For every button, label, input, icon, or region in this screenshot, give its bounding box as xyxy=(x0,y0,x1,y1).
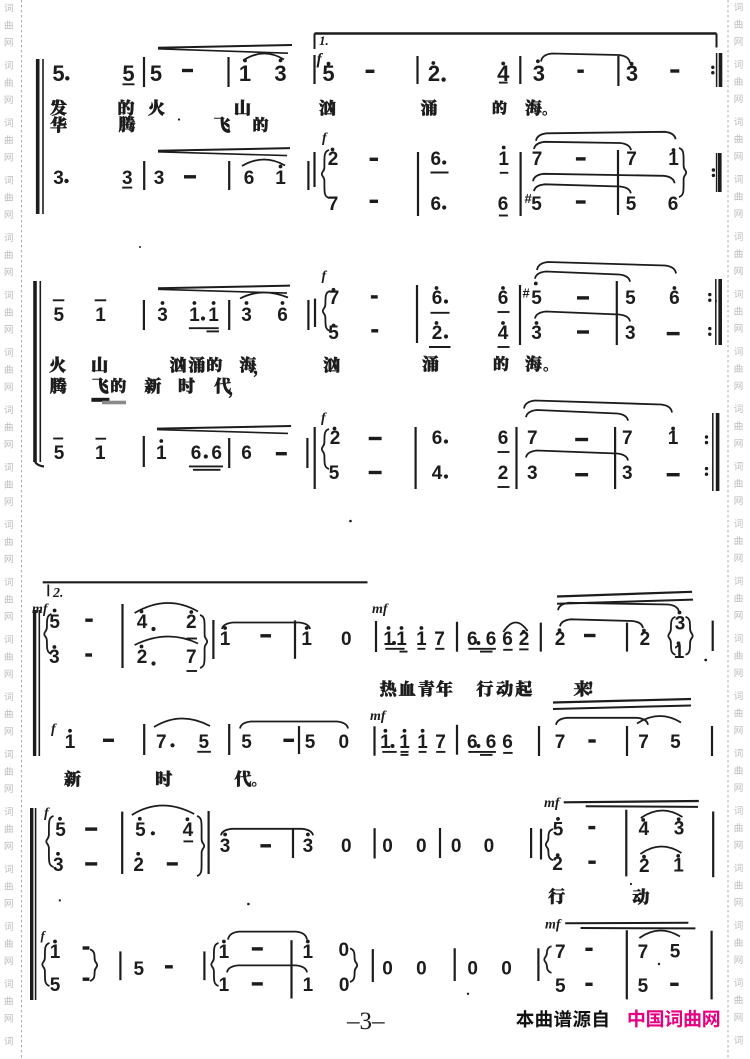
svg-text:6: 6 xyxy=(241,443,252,464)
svg-text:5: 5 xyxy=(54,443,65,464)
svg-text:1: 1 xyxy=(65,732,76,753)
svg-text:0: 0 xyxy=(484,836,495,857)
svg-text:3: 3 xyxy=(303,836,314,857)
svg-text:1: 1 xyxy=(303,975,314,996)
svg-text:1: 1 xyxy=(668,149,679,170)
svg-text:mf: mf xyxy=(545,918,562,933)
svg-text:1: 1 xyxy=(220,629,231,650)
svg-text:1: 1 xyxy=(417,732,428,753)
svg-text:f: f xyxy=(41,928,47,943)
svg-text:7: 7 xyxy=(622,428,633,449)
svg-text:0: 0 xyxy=(382,836,393,857)
svg-text:#: # xyxy=(523,286,531,301)
svg-text:6: 6 xyxy=(211,443,222,464)
svg-text:1: 1 xyxy=(498,149,509,170)
svg-text:5: 5 xyxy=(305,732,316,753)
svg-text:1: 1 xyxy=(301,629,312,650)
svg-text:4: 4 xyxy=(432,463,443,484)
svg-text:3: 3 xyxy=(53,168,64,189)
svg-text:6: 6 xyxy=(669,288,680,309)
svg-text:0: 0 xyxy=(451,836,462,857)
svg-text:2: 2 xyxy=(186,612,197,633)
svg-text:5: 5 xyxy=(134,959,145,980)
svg-text:2: 2 xyxy=(137,647,148,668)
svg-text:5: 5 xyxy=(531,194,542,215)
svg-text:0: 0 xyxy=(341,836,352,857)
svg-text:1: 1 xyxy=(668,428,679,449)
svg-text:2: 2 xyxy=(555,629,566,650)
svg-text:0: 0 xyxy=(339,940,350,961)
svg-text:7: 7 xyxy=(555,942,566,963)
svg-text:6: 6 xyxy=(668,194,679,215)
svg-text:7: 7 xyxy=(156,732,167,753)
svg-text:1: 1 xyxy=(219,942,230,963)
svg-text:6: 6 xyxy=(431,149,442,170)
svg-text:5: 5 xyxy=(150,61,162,86)
svg-text:7: 7 xyxy=(527,428,538,449)
svg-text:1: 1 xyxy=(95,305,106,326)
svg-text:2: 2 xyxy=(330,428,341,449)
svg-text:6: 6 xyxy=(502,732,513,753)
svg-text:1: 1 xyxy=(208,305,219,326)
svg-text:mf: mf xyxy=(544,796,561,811)
svg-text:5: 5 xyxy=(531,288,542,309)
svg-text:1: 1 xyxy=(219,975,230,996)
svg-text:3: 3 xyxy=(622,463,633,484)
svg-text:–3–: –3– xyxy=(346,1008,385,1035)
svg-text:7: 7 xyxy=(186,647,197,668)
svg-text:5: 5 xyxy=(638,976,649,997)
svg-text:6: 6 xyxy=(486,629,497,650)
svg-text:3: 3 xyxy=(625,323,636,344)
svg-text:f: f xyxy=(322,269,328,284)
svg-text:5: 5 xyxy=(625,288,636,309)
svg-text:3: 3 xyxy=(157,305,168,326)
svg-text:mf: mf xyxy=(372,602,389,617)
svg-text:3: 3 xyxy=(49,647,60,668)
svg-text:0: 0 xyxy=(467,959,478,980)
svg-text:2: 2 xyxy=(552,854,563,875)
svg-text:2.: 2. xyxy=(52,586,64,601)
svg-text:5: 5 xyxy=(626,194,637,215)
svg-text:4: 4 xyxy=(183,820,194,841)
svg-text:0: 0 xyxy=(416,836,427,857)
svg-text:0: 0 xyxy=(416,959,427,980)
svg-text:5: 5 xyxy=(555,976,566,997)
svg-text:5: 5 xyxy=(55,820,66,841)
svg-text:1: 1 xyxy=(380,732,391,753)
svg-text:3: 3 xyxy=(675,614,686,635)
svg-text:5: 5 xyxy=(329,463,340,484)
svg-text:5: 5 xyxy=(670,732,681,753)
svg-text:f: f xyxy=(321,411,327,426)
svg-text:1: 1 xyxy=(156,443,167,464)
svg-text:1: 1 xyxy=(674,642,685,663)
svg-text:2: 2 xyxy=(432,323,443,344)
svg-text:5: 5 xyxy=(122,61,134,86)
svg-text:1: 1 xyxy=(383,629,394,650)
svg-text:6: 6 xyxy=(498,288,509,309)
svg-text:6: 6 xyxy=(431,194,442,215)
svg-text:6: 6 xyxy=(191,443,202,464)
svg-text:6: 6 xyxy=(498,428,509,449)
svg-text:5: 5 xyxy=(49,612,60,633)
svg-text:3: 3 xyxy=(531,323,542,344)
svg-text:3: 3 xyxy=(274,61,286,86)
svg-text:7: 7 xyxy=(638,942,649,963)
svg-text:5: 5 xyxy=(670,942,681,963)
svg-text:1: 1 xyxy=(396,629,407,650)
svg-text:6: 6 xyxy=(467,732,478,753)
svg-text:5: 5 xyxy=(50,975,61,996)
svg-text:4: 4 xyxy=(137,612,148,633)
svg-text:0: 0 xyxy=(339,975,350,996)
svg-text:3: 3 xyxy=(53,855,64,876)
svg-text:mf: mf xyxy=(370,709,387,724)
svg-text:1.: 1. xyxy=(319,33,329,48)
svg-text:7: 7 xyxy=(328,194,339,215)
svg-text:6: 6 xyxy=(277,305,288,326)
svg-text:7: 7 xyxy=(555,732,566,753)
svg-text:0: 0 xyxy=(382,959,393,980)
svg-text:5: 5 xyxy=(199,732,210,753)
svg-text:6: 6 xyxy=(498,194,509,215)
svg-text:7: 7 xyxy=(626,149,637,170)
svg-text:1: 1 xyxy=(275,168,286,189)
svg-text:6: 6 xyxy=(432,288,443,309)
svg-text:1: 1 xyxy=(239,61,251,86)
svg-text:7: 7 xyxy=(532,149,543,170)
svg-text:6: 6 xyxy=(467,629,478,650)
svg-text:6: 6 xyxy=(432,428,443,449)
svg-text:5: 5 xyxy=(553,820,564,841)
svg-text:2: 2 xyxy=(133,855,144,876)
svg-text:3: 3 xyxy=(527,463,538,484)
svg-text:5: 5 xyxy=(52,61,64,86)
svg-text:1: 1 xyxy=(416,629,427,650)
svg-text:1: 1 xyxy=(189,305,200,326)
svg-text:mf: mf xyxy=(32,602,49,617)
svg-text:2: 2 xyxy=(328,149,339,170)
svg-text:1: 1 xyxy=(303,942,314,963)
svg-text:3: 3 xyxy=(533,61,545,86)
svg-text:1: 1 xyxy=(95,443,106,464)
svg-text:1: 1 xyxy=(399,732,410,753)
svg-text:4: 4 xyxy=(498,323,509,344)
svg-text:5: 5 xyxy=(135,820,146,841)
svg-text:3: 3 xyxy=(154,168,165,189)
svg-text:f: f xyxy=(51,722,57,737)
svg-text:3: 3 xyxy=(220,836,231,857)
svg-text:1: 1 xyxy=(50,942,61,963)
svg-text:6: 6 xyxy=(244,168,255,189)
svg-text:7: 7 xyxy=(638,732,649,753)
svg-text:7: 7 xyxy=(435,732,446,753)
svg-text:5: 5 xyxy=(241,732,252,753)
svg-text:4: 4 xyxy=(639,819,650,840)
svg-text:3: 3 xyxy=(241,305,252,326)
svg-text:2: 2 xyxy=(498,463,509,484)
svg-text:6: 6 xyxy=(486,732,497,753)
svg-text:7: 7 xyxy=(434,629,445,650)
svg-text:2: 2 xyxy=(639,856,650,877)
svg-text:f: f xyxy=(322,131,328,146)
svg-text:3: 3 xyxy=(674,819,685,840)
svg-text:0: 0 xyxy=(341,629,352,650)
svg-text:0: 0 xyxy=(501,959,512,980)
svg-text:1: 1 xyxy=(673,855,684,876)
svg-text:0: 0 xyxy=(339,732,350,753)
svg-text:2: 2 xyxy=(640,629,651,650)
svg-text:3: 3 xyxy=(122,168,133,189)
svg-text:5: 5 xyxy=(54,305,65,326)
